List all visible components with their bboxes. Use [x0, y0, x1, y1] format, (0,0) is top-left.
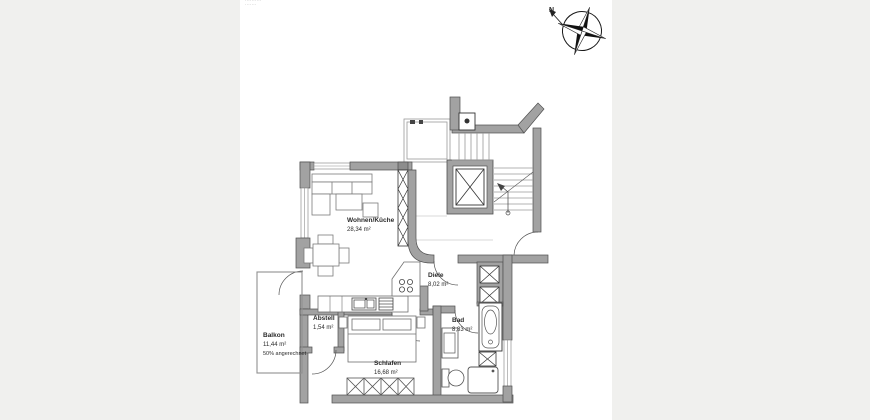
elevator	[447, 160, 493, 214]
room-area: 1,54 m²	[313, 324, 335, 333]
floor-plan-svg	[0, 0, 870, 420]
wardrobe	[347, 378, 414, 395]
room-label-bad: Bad 8,83 m²	[452, 316, 472, 335]
stairs-right-flight	[494, 168, 533, 210]
room-area: 28,34 m²	[347, 226, 394, 235]
window-left	[301, 188, 308, 238]
room-label-abstell: Abstell 1,54 m²	[313, 314, 335, 333]
bottom-wall	[332, 395, 513, 403]
room-name: Diele	[428, 271, 448, 281]
corner-cabinet	[392, 262, 420, 296]
room-note: 50% angerechnet	[263, 350, 306, 359]
kitchen-sink	[352, 298, 376, 310]
coffee-table	[336, 194, 362, 210]
bedroom-furniture	[339, 316, 425, 395]
room-label-diele: Diele 8,02 m²	[428, 271, 448, 290]
room-area: 8,02 m²	[428, 281, 448, 290]
shower	[468, 367, 498, 393]
room-name: Schlafen	[374, 359, 401, 369]
room-name: Abstell	[313, 314, 335, 324]
side-table	[363, 203, 378, 217]
overhead-outline	[404, 119, 450, 162]
dining-set	[304, 235, 349, 276]
landing-lines	[416, 216, 493, 240]
room-label-balkon: Balkon 11,44 m² 50% angerechnet	[263, 331, 306, 359]
compass-rose	[549, 0, 614, 63]
shaft-wall-diele	[477, 262, 503, 304]
stairwell-right-wall	[533, 128, 541, 232]
curved-wall	[408, 170, 434, 263]
kitchen-oven	[379, 298, 393, 310]
room-label-schlafen: Schlafen 16,68 m²	[374, 359, 401, 378]
wall-stub	[450, 97, 460, 130]
room-area: 8,83 m²	[452, 326, 472, 335]
room-area: 11,44 m²	[263, 341, 306, 350]
room-area: 16,68 m²	[374, 369, 401, 378]
room-name: Wohnen/Küche	[347, 216, 394, 226]
stairwell	[416, 97, 544, 256]
column-marker	[459, 113, 475, 130]
window-top	[314, 163, 350, 169]
bed	[339, 316, 425, 362]
north-label: N	[549, 7, 554, 14]
right-outer-wall	[503, 255, 512, 402]
room-label-wohnen: Wohnen/Küche 28,34 m²	[347, 216, 394, 235]
room-name: Balkon	[263, 331, 306, 341]
balcony-door-arc	[279, 271, 303, 295]
abstell-door-arc	[312, 350, 336, 374]
window-right	[504, 340, 511, 388]
drawing-canvas: ·········· ·······	[0, 0, 870, 420]
stairwell-door-arc	[514, 232, 538, 256]
stairs-upper-flight	[452, 133, 493, 160]
bathtub	[477, 302, 503, 351]
bath-shaft	[479, 352, 496, 366]
toilet	[442, 369, 464, 387]
room-name: Bad	[452, 316, 472, 326]
shaft-wall-living	[398, 162, 408, 246]
